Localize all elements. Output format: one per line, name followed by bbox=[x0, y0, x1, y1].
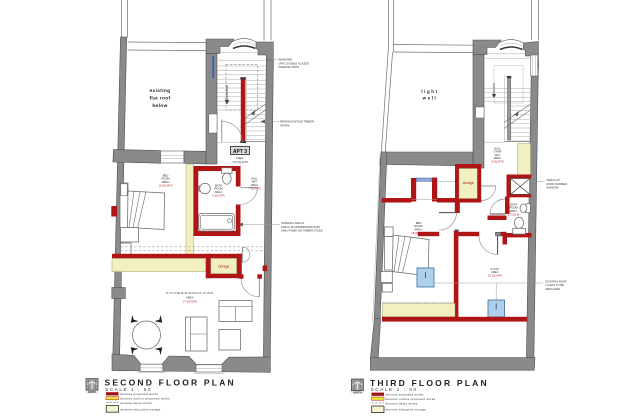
svg-text:light: light bbox=[421, 89, 438, 94]
svg-text:7 SQ MTS: 7 SQ MTS bbox=[248, 186, 261, 190]
svg-text:EXISTING ROOF: EXISTING ROOF bbox=[546, 279, 567, 283]
svg-text:STAIRS: STAIRS bbox=[280, 123, 290, 127]
svg-text:3 SQ MTS: 3 SQ MTS bbox=[212, 193, 225, 197]
svg-text:27 SQ MTS: 27 SQ MTS bbox=[183, 299, 197, 303]
svg-text:storage: storage bbox=[463, 181, 474, 185]
svg-text:uPVC DOUBLE GLAZED: uPVC DOUBLE GLAZED bbox=[279, 61, 309, 65]
svg-text:REPLACED: REPLACED bbox=[546, 287, 561, 291]
svg-text:AREA:: AREA: bbox=[491, 270, 499, 274]
svg-text:NORTH: NORTH bbox=[353, 392, 362, 394]
svg-text:below: below bbox=[152, 103, 167, 109]
svg-text:ROOF DORMER: ROOF DORMER bbox=[547, 182, 568, 186]
svg-text:AREA:: AREA: bbox=[509, 209, 517, 213]
svg-text:denotes proposed works: denotes proposed works bbox=[120, 392, 158, 396]
svg-text:well: well bbox=[422, 96, 438, 101]
svg-text:APT 3: APT 3 bbox=[233, 149, 247, 155]
svg-text:AREA:: AREA: bbox=[214, 190, 222, 194]
svg-text:LIGHTS TO BE: LIGHTS TO BE bbox=[546, 283, 565, 287]
svg-text:KITCHEN/DINING/LIVING: KITCHEN/DINING/LIVING bbox=[166, 291, 214, 295]
svg-text:denotes demo works: denotes demo works bbox=[386, 401, 418, 405]
svg-text:AREA:: AREA: bbox=[414, 227, 422, 231]
svg-text:2.9 SQ M: 2.9 SQ M bbox=[508, 212, 520, 216]
svg-text:AREA:: AREA: bbox=[161, 180, 169, 184]
svg-text:storage: storage bbox=[218, 264, 229, 268]
svg-text:AREA:: AREA: bbox=[186, 295, 194, 299]
svg-text:713 SQ MTS: 713 SQ MTS bbox=[232, 160, 248, 164]
svg-text:9 SQ MTS: 9 SQ MTS bbox=[491, 160, 504, 164]
svg-text:10 SQ MTS: 10 SQ MTS bbox=[158, 183, 172, 187]
svg-text:NORTH: NORTH bbox=[88, 392, 97, 394]
svg-text:SECOND FLOOR PLAN: SECOND FLOOR PLAN bbox=[105, 378, 236, 388]
svg-text:denotes demo works: denotes demo works bbox=[120, 401, 152, 405]
svg-text:15 SQ MTS: 15 SQ MTS bbox=[411, 231, 425, 235]
svg-text:denotes allocated storage: denotes allocated storage bbox=[120, 407, 161, 411]
svg-text:10 SQ MTS: 10 SQ MTS bbox=[488, 274, 502, 278]
svg-text:THIRD FLOOR PLAN: THIRD FLOOR PLAN bbox=[370, 378, 489, 388]
svg-text:denotes proposed works: denotes proposed works bbox=[386, 393, 424, 397]
svg-text:WINDOW: WINDOW bbox=[547, 186, 559, 190]
svg-text:AREA:: AREA: bbox=[493, 156, 501, 160]
svg-text:240m FINISH ON TIMBER STUDS: 240m FINISH ON TIMBER STUDS bbox=[281, 229, 323, 233]
svg-text:existing: existing bbox=[150, 88, 171, 94]
svg-text:RETAIN EXISTING TIMBER: RETAIN EXISTING TIMBER bbox=[280, 120, 314, 124]
svg-text:AREA:: AREA: bbox=[236, 156, 244, 160]
svg-text:WINDOWS: WINDOWS bbox=[279, 58, 293, 62]
svg-text:100mm PLASTERBOARD WITH: 100mm PLASTERBOARD WITH bbox=[281, 225, 320, 229]
svg-text:AREA:: AREA: bbox=[250, 183, 258, 187]
svg-text:NEW FLAT: NEW FLAT bbox=[547, 178, 561, 182]
svg-text:denotes allocated storage: denotes allocated storage bbox=[386, 408, 427, 412]
svg-text:INTERNAL WALLS:: INTERNAL WALLS: bbox=[281, 221, 305, 225]
svg-text:flat roof: flat roof bbox=[149, 96, 170, 102]
svg-text:WINDOW UNITS: WINDOW UNITS bbox=[279, 65, 300, 69]
